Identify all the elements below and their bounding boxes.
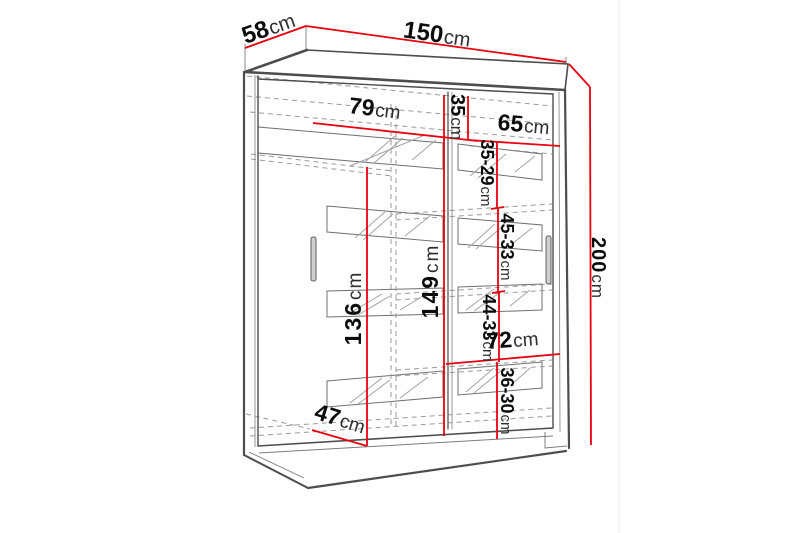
dim-label-35cm: 35cm bbox=[446, 94, 468, 140]
dim-label-200cm: 200cm bbox=[587, 237, 609, 299]
left-door-handle bbox=[311, 237, 316, 281]
diagram-canvas: 58cm 150cm 200cm 79cm 35cm 65cm 35-29cm … bbox=[0, 0, 800, 533]
dim-label-150cm: 150cm bbox=[402, 16, 473, 52]
right-door-handle bbox=[546, 236, 551, 284]
dim-label-58cm: 58cm bbox=[238, 6, 298, 50]
wardrobe-dimension-diagram: 58cm 150cm 200cm 79cm 35cm 65cm 35-29cm … bbox=[0, 0, 800, 533]
dim-label-45-33cm: 45-33cm bbox=[497, 213, 517, 280]
dim-label-35-29cm: 35-29cm bbox=[477, 139, 497, 206]
mirror-strip bbox=[458, 284, 542, 313]
dim-label-36-30cm: 36-30cm bbox=[497, 367, 517, 434]
